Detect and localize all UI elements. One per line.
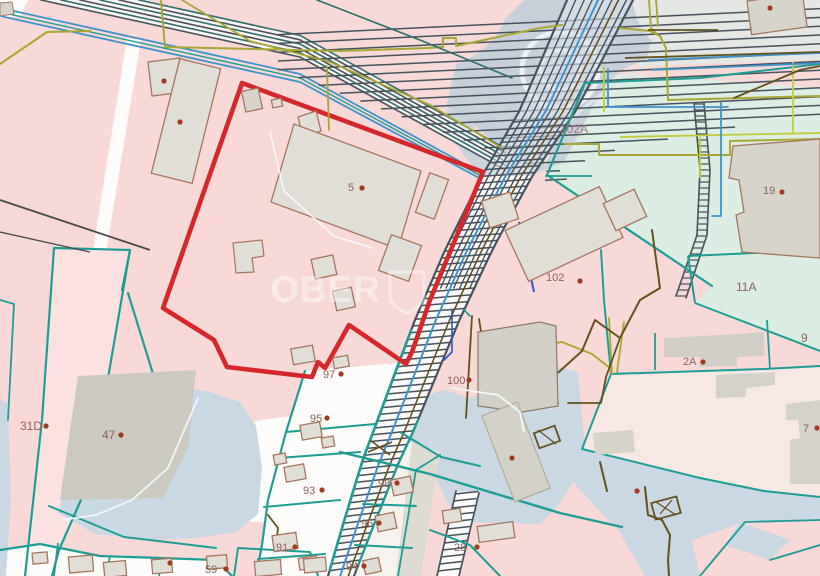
svg-text:97: 97 xyxy=(323,369,335,381)
svg-text:28: 28 xyxy=(454,542,466,554)
svg-text:OBER: OBER xyxy=(270,269,381,310)
svg-text:98: 98 xyxy=(378,478,390,490)
svg-text:11A: 11A xyxy=(736,280,756,294)
svg-text:93: 93 xyxy=(303,485,315,497)
svg-text:96: 96 xyxy=(361,518,373,530)
svg-text:102: 102 xyxy=(546,272,564,284)
svg-text:95: 95 xyxy=(310,413,322,425)
svg-text:91: 91 xyxy=(276,542,288,554)
svg-text:59: 59 xyxy=(205,564,217,576)
svg-text:31D: 31D xyxy=(20,419,42,433)
svg-text:19: 19 xyxy=(763,185,775,197)
svg-text:100: 100 xyxy=(447,375,465,387)
svg-text:94: 94 xyxy=(346,561,358,573)
svg-text:7: 7 xyxy=(803,423,809,435)
svg-text:47: 47 xyxy=(102,428,116,442)
svg-text:9: 9 xyxy=(801,331,808,345)
svg-text:5: 5 xyxy=(348,182,354,194)
svg-text:102A: 102A xyxy=(560,122,588,136)
svg-text:2A: 2A xyxy=(683,356,697,368)
